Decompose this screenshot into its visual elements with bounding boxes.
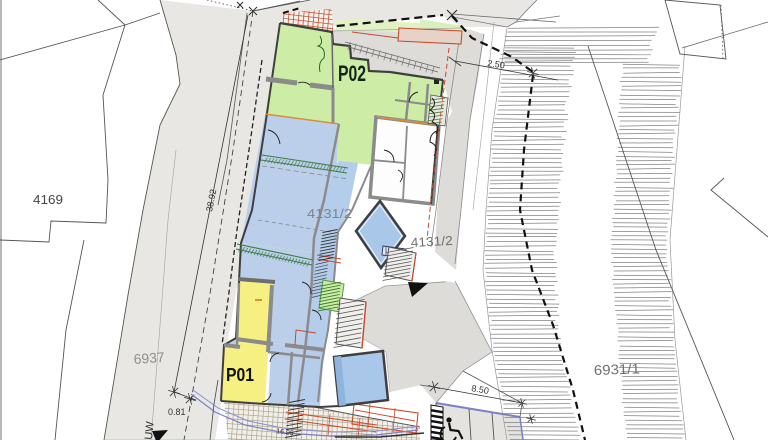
svg-text:4169: 4169 [33, 192, 63, 207]
svg-text:0.81: 0.81 [168, 407, 186, 417]
svg-text:6931/1: 6931/1 [594, 360, 641, 378]
svg-text:4131/2: 4131/2 [410, 233, 453, 250]
svg-text:6937: 6937 [133, 349, 165, 367]
svg-text:4131/2: 4131/2 [307, 206, 352, 221]
svg-text:P01: P01 [226, 365, 254, 385]
svg-text:P02: P02 [338, 61, 366, 86]
svg-text:UW: UW [143, 420, 157, 440]
